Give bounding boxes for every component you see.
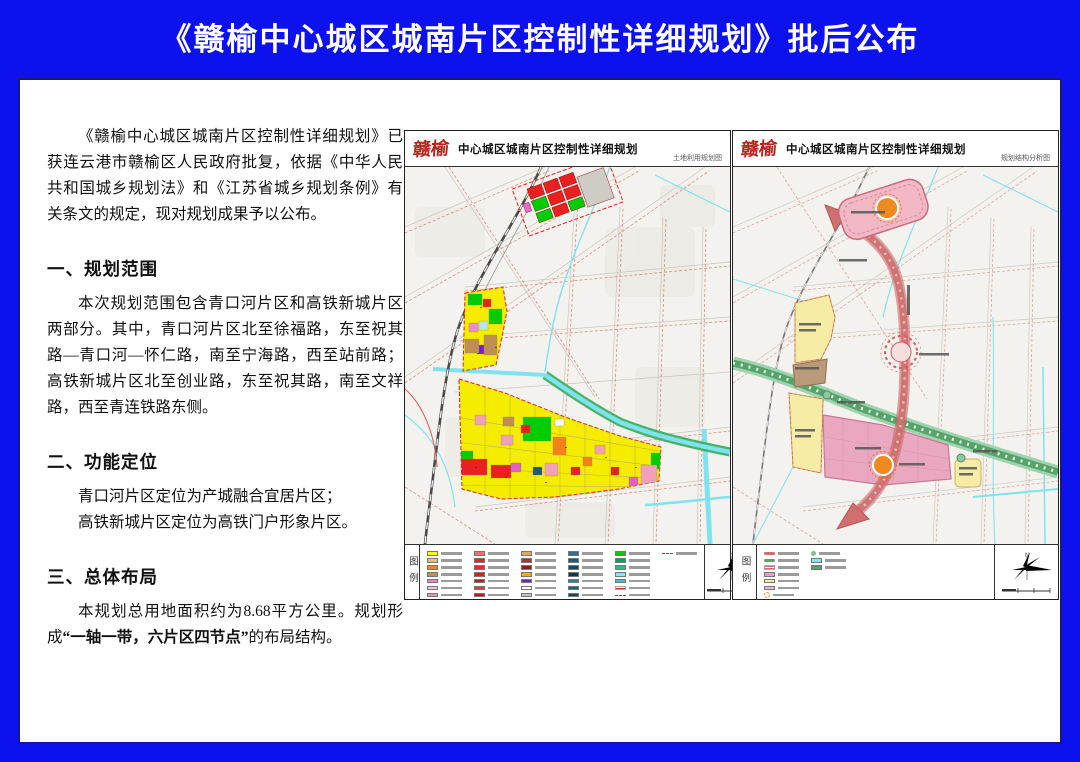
legend-item-label [629,594,650,597]
legend-item-label [488,552,509,555]
legend-item [521,579,556,584]
legend-item [615,565,650,570]
legend-item [764,593,799,598]
legend-item [615,579,650,584]
map2-title: 中心城区城南片区控制性详细规划 [786,141,966,157]
map1-legend-title: 图例 [405,556,419,589]
legend-item-label [629,566,650,569]
legend-item [615,586,650,591]
legend-item-label [535,587,556,590]
legend-item [427,593,462,598]
legend-item [764,586,799,591]
legend-item [521,565,556,570]
legend-item-label [535,573,556,576]
legend-item-label [441,587,462,590]
legend-item [474,579,509,584]
legend-item [521,593,556,598]
map2-body [733,167,1058,544]
page-title: 《赣榆中心城区城南片区控制性详细规划》批后公布 [0,14,1080,59]
legend-item [764,572,799,577]
section2-line2: 高铁新城片区定位为高铁门户形象片区。 [47,510,403,536]
legend-item [427,579,462,584]
map2-compass-box: N [994,545,1058,599]
legend-item [615,558,650,563]
legend-item-label [582,587,603,590]
map-panel-structure: 赣榆 中心城区城南片区控制性详细规划 规划结构分析图 [732,130,1059,600]
legend-item [427,551,462,556]
announcement-article: 《赣榆中心城区城南片区控制性详细规划》已获连云港市赣榆区人民政府批复，依据《中华… [47,124,403,651]
ganyu-logo: 赣榆 [740,139,778,159]
legend-item-label [629,587,650,590]
legend-item-label [582,566,603,569]
legend-item [811,565,846,570]
section2-heading: 二、功能定位 [47,449,403,475]
map1-legend-title-box: 图例 [405,545,420,599]
legend-item-label [488,573,509,576]
legend-item [615,572,650,577]
map2-subtitle: 规划结构分析图 [1001,153,1050,163]
legend-item-label [441,573,462,576]
legend-item-label [582,559,603,562]
legend-item-label [676,552,697,555]
legend-item [474,551,509,556]
legend-item-label [441,552,462,555]
section1-heading: 一、规划范围 [47,256,403,282]
section3-body: 本规划总用地面积约为8.68平方公里。规划形成“一轴一带，六片区四节点”的布局结… [47,599,403,651]
legend-item [568,586,603,591]
legend-item [474,586,509,591]
legend-item-label [629,559,650,562]
legend-item [568,558,603,563]
map2-legend: 图例 N [733,544,1058,599]
legend-item-label [825,559,846,562]
section3-heading: 三、总体布局 [47,564,403,590]
legend-item-label [773,594,794,597]
content-panel: 《赣榆中心城区城南片区控制性详细规划》已获连云港市赣榆区人民政府批复，依据《中华… [18,78,1062,744]
legend-item-label [535,552,556,555]
legend-item-label [488,594,509,597]
map2-header: 赣榆 中心城区城南片区控制性详细规划 规划结构分析图 [733,131,1058,167]
map1-title: 中心城区城南片区控制性详细规划 [458,141,638,157]
compass-icon: N [1000,550,1054,584]
legend-item [764,565,799,570]
legend-item [474,593,509,598]
legend-item-label [535,559,556,562]
legend-item-label [582,573,603,576]
scale-bar [1000,586,1054,594]
legend-item [521,572,556,577]
legend-item-label [535,566,556,569]
legend-item [568,551,603,556]
legend-item-label [488,580,509,583]
legend-item-label [778,573,799,576]
map2-legend-swatches [757,545,994,599]
legend-item-label [488,566,509,569]
legend-item [474,565,509,570]
legend-item-label [535,580,556,583]
legend-item [615,551,650,556]
map1-legend: 图例 N [405,544,730,599]
legend-item-label [629,580,650,583]
legend-item-label [582,580,603,583]
legend-item [811,551,846,556]
map1-legend-swatches [420,545,704,599]
legend-item-label [778,559,799,562]
structure-map-graphic [733,167,1058,544]
map1-subtitle: 土地利用规划图 [673,153,722,163]
legend-item [427,558,462,563]
legend-item-label [441,566,462,569]
ganyu-logo: 赣榆 [412,139,450,159]
map2-legend-title-box: 图例 [733,545,757,599]
legend-item-label [778,566,799,569]
legend-item [568,579,603,584]
legend-item [474,558,509,563]
legend-item-label [582,552,603,555]
intro-paragraph: 《赣榆中心城区城南片区控制性详细规划》已获连云港市赣榆区人民政府批复，依据《中华… [47,124,403,228]
section3-bold-phrase: “一轴一带，六片区四节点” [63,629,249,646]
section1-body: 本次规划范围包含青口河片区和高铁新城片区两部分。其中，青口河片区北至徐福路，东至… [47,291,403,421]
announcement-page: { "page": { "title": "《赣榆中心城区城南片区控制性详细规划… [0,0,1080,762]
legend-item [568,572,603,577]
legend-item-label [629,552,650,555]
legend-item [427,572,462,577]
legend-item [662,551,697,556]
legend-item-label [535,594,556,597]
legend-item [568,565,603,570]
legend-item-label [441,594,462,597]
legend-item-label [582,594,603,597]
legend-item [764,551,799,556]
legend-item [427,586,462,591]
legend-item-label [819,552,840,555]
legend-item [568,593,603,598]
legend-item [521,586,556,591]
legend-item [427,565,462,570]
legend-item-label [488,587,509,590]
legend-item [764,558,799,563]
land-use-map-graphic [405,167,730,544]
map1-header: 赣榆 中心城区城南片区控制性详细规划 土地利用规划图 [405,131,730,167]
legend-item-label [441,559,462,562]
legend-item-label [778,580,799,583]
legend-item [811,558,846,563]
legend-item-label [778,552,799,555]
legend-item [521,551,556,556]
legend-item [615,593,650,598]
map2-legend-title: 图例 [738,556,752,589]
map1-body [405,167,730,544]
legend-item-label [629,573,650,576]
section3-post: 的布局结构。 [249,629,342,646]
map-panel-land-use: 赣榆 中心城区城南片区控制性详细规划 土地利用规划图 [404,130,731,600]
legend-item-label [488,559,509,562]
legend-item [764,579,799,584]
legend-item [474,572,509,577]
legend-item [521,558,556,563]
legend-item-label [441,580,462,583]
legend-item-label [778,587,799,590]
section2-line1: 青口河片区定位为产城融合宜居片区； [47,484,403,510]
legend-item-label [825,566,846,569]
